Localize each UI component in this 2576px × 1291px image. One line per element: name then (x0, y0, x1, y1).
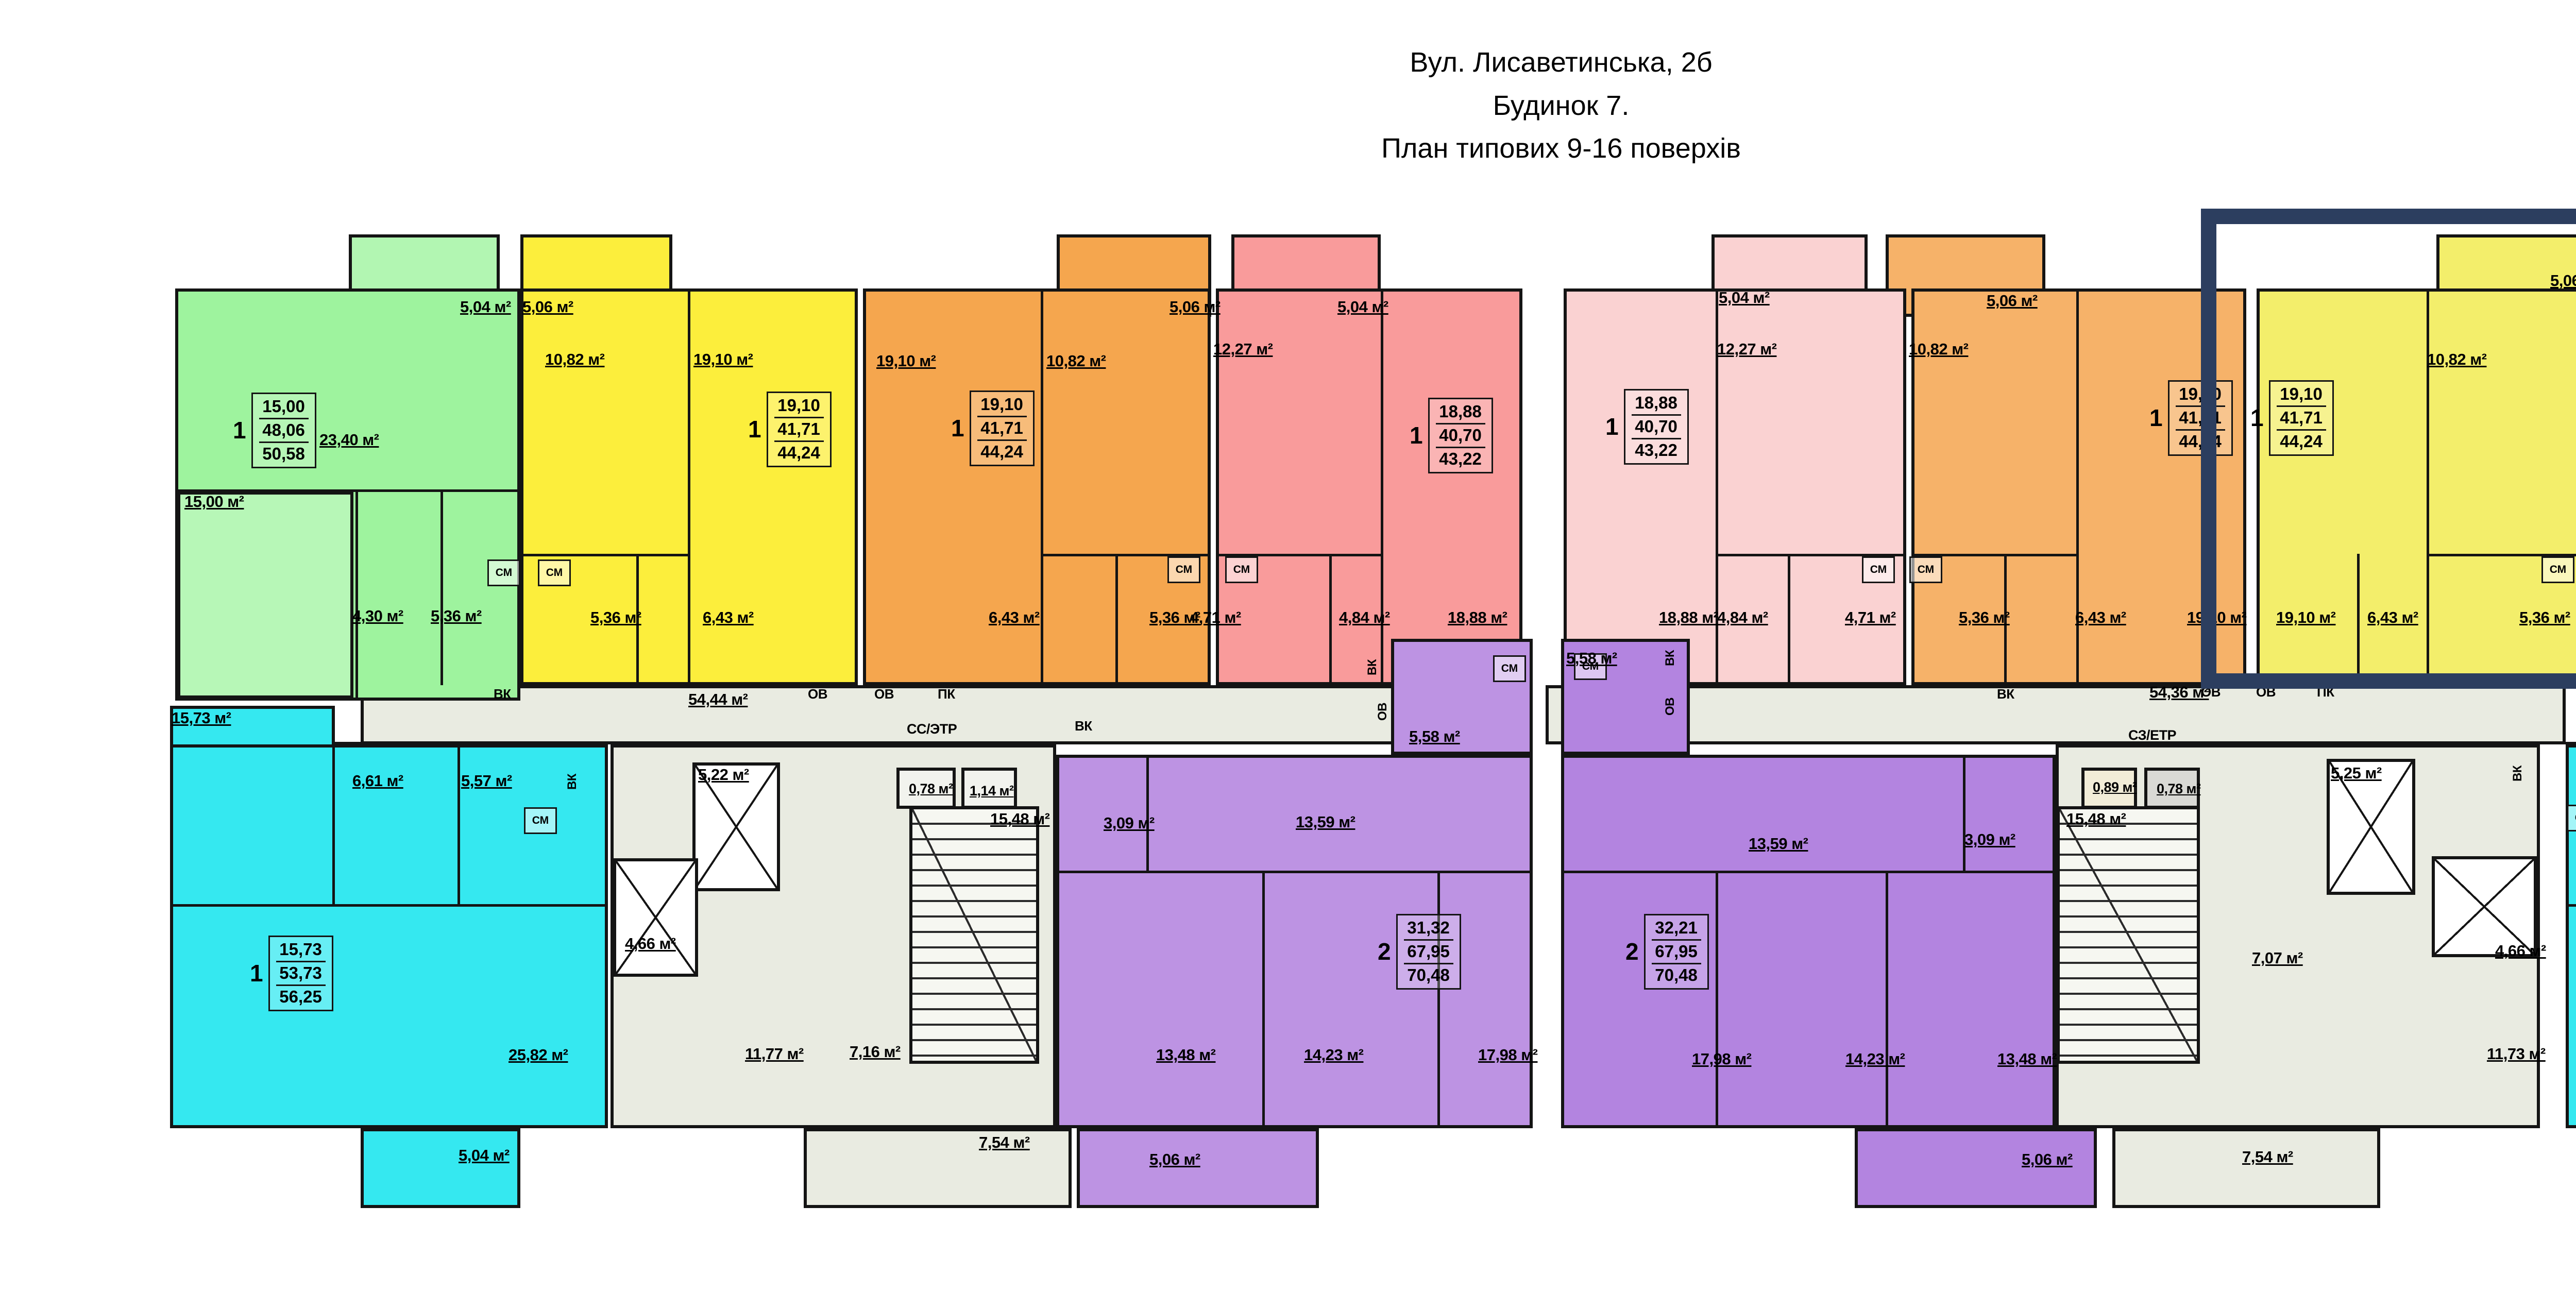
washing-machine-box: СМ (1909, 556, 1942, 583)
area-label: 19,10 м² (693, 350, 753, 369)
area-label: СЗ/ЕТР (2128, 727, 2176, 743)
area-label: 4,66 м² (625, 935, 676, 953)
area-label: 5,04 м² (1337, 298, 1388, 316)
washing-machine-box: СМ (2567, 805, 2576, 831)
area-label: 14,23 м² (1304, 1046, 1363, 1064)
apartment-stats: 119,1041,7144,24 (951, 390, 1035, 466)
washing-machine-box: СМ (2541, 556, 2574, 583)
apt-purple-left (1056, 755, 1533, 1128)
apartment-area-value: 41,71 (774, 418, 824, 442)
inner-wall (1262, 871, 1265, 1128)
area-label: 5,36 м² (431, 607, 482, 625)
area-label: ВК (565, 774, 580, 790)
inner-wall (440, 489, 443, 685)
inner-wall (1716, 871, 1718, 1128)
area-label: 12,27 м² (1717, 340, 1776, 359)
area-label: 5,25 м² (2331, 764, 2382, 783)
area-label: 5,58 м² (1566, 649, 1617, 668)
area-label: ВК (1663, 650, 1677, 666)
inner-wall (170, 904, 608, 907)
area-label: ВК (2511, 766, 2525, 782)
apartment-area-value: 19,10 (774, 395, 824, 418)
area-label: 7,54 м² (979, 1133, 1030, 1152)
inner-wall (332, 742, 335, 904)
apartment-room-count: 2 (1625, 938, 1639, 965)
apartment-area-value: 15,00 (259, 396, 309, 419)
area-label: 15,48 м² (2066, 810, 2126, 828)
area-label: 4,66 м² (2495, 942, 2546, 960)
apartment-area-value: 40,70 (1632, 416, 1681, 439)
area-label: 19,10 м² (2187, 608, 2246, 627)
area-label: 11,77 м² (745, 1045, 804, 1063)
inner-wall (2427, 288, 2429, 685)
area-label: ОВ (1663, 698, 1677, 716)
area-label: 13,59 м² (1296, 813, 1355, 831)
apt-cyan-right (2566, 744, 2576, 1128)
inner-wall (457, 742, 460, 904)
apartment-area-value: 44,24 (774, 442, 824, 464)
area-label: 11,73 м² (2487, 1045, 2546, 1063)
area-label: 6,43 м² (2367, 608, 2418, 627)
apartment-area-value: 41,71 (977, 417, 1027, 441)
apartment-areas-box: 19,1041,7144,24 (970, 390, 1035, 466)
apartment-area-value: 19,10 (977, 394, 1027, 417)
area-label: 5,06 м² (522, 298, 573, 316)
apartment-area-value: 70,48 (1652, 964, 1701, 987)
apartment-area-value: 43,22 (1632, 439, 1681, 462)
apartment-area-value: 44,24 (2277, 431, 2326, 453)
apartment-area-value: 18,88 (1436, 401, 1485, 424)
apartment-area-value: 70,48 (1404, 964, 1453, 987)
washing-machine-box: СМ (1493, 655, 1526, 682)
plan-title: Вул. Лисаветинська, 2б Будинок 7. План т… (1252, 41, 1870, 171)
elevator-shaft (613, 858, 698, 977)
area-label: 6,43 м² (989, 608, 1040, 627)
washing-machine-box: СМ (1225, 556, 1258, 583)
area-label: 5,06 м² (2550, 271, 2576, 290)
inner-wall (1041, 288, 1043, 685)
area-label: 12,27 м² (1213, 340, 1273, 359)
apartment-areas-box: 18,8840,7043,22 (1428, 398, 1493, 473)
apartment-areas-box: 19,1041,7144,24 (2269, 380, 2334, 456)
area-label: 0,78 м² (909, 781, 953, 797)
stairwell (2057, 806, 2200, 1064)
apartment-room-count: 1 (1605, 413, 1619, 440)
area-label: ПК (2317, 684, 2334, 700)
area-label: ПК (938, 686, 955, 702)
area-label: 5,06 м² (1149, 1150, 1200, 1169)
area-label: 5,04 м² (1719, 288, 1770, 307)
apartment-area-value: 41,71 (2176, 407, 2225, 431)
apartment-areas-box: 15,7353,7356,25 (268, 936, 333, 1011)
apartment-areas-box: 32,2167,9570,48 (1644, 914, 1709, 990)
inner-wall (520, 554, 688, 556)
inner-wall (1437, 871, 1440, 1128)
area-label: 4,84 м² (1339, 608, 1390, 627)
apartment-area-value: 67,95 (1652, 941, 1701, 964)
inner-wall (1886, 871, 1888, 1128)
area-label: 5,04 м² (459, 1146, 510, 1165)
apt-cyan-left (170, 744, 608, 1128)
apartment-area-value: 50,58 (259, 443, 309, 465)
area-label: 5,22 м² (698, 766, 749, 784)
apartment-areas-box: 19,1041,7144,24 (2168, 380, 2233, 456)
area-label: 15,73 м² (172, 709, 231, 727)
apartment-area-value: 41,71 (2277, 407, 2326, 431)
apartment-room-count: 1 (250, 959, 263, 987)
area-label: 25,82 м² (509, 1046, 568, 1064)
area-label: 5,57 м² (461, 772, 512, 790)
apartment-area-value: 56,25 (276, 986, 326, 1008)
area-label: ВК (1365, 659, 1380, 675)
title-building: Будинок 7. (1252, 84, 1870, 128)
apartment-stats: 118,8840,7043,22 (1410, 398, 1493, 473)
apartment-area-value: 43,22 (1436, 448, 1485, 470)
apartment-stats: 119,1041,7144,24 (2149, 380, 2233, 456)
area-label: 7,54 м² (2242, 1148, 2293, 1166)
apartment-room-count: 1 (748, 415, 761, 443)
inner-wall (2357, 554, 2360, 685)
area-label: ОВ (2256, 684, 2276, 700)
area-label: СС/ЭТР (907, 721, 957, 737)
area-label: 15,00 м² (184, 492, 244, 511)
inner-wall (175, 489, 520, 492)
corridor-right (1546, 685, 2566, 744)
area-label: 5,58 м² (1409, 727, 1460, 746)
apartment-room-count: 1 (233, 416, 246, 444)
area-label: 13,48 м² (1156, 1046, 1215, 1064)
apartment-areas-box: 31,3267,9570,48 (1396, 914, 1461, 990)
washing-machine-box: СМ (1167, 556, 1200, 583)
area-label: 19,10 м² (2276, 608, 2335, 627)
area-label: 14,23 м² (1845, 1050, 1905, 1068)
apartment-stats: 118,8840,7043,22 (1605, 389, 1689, 465)
apartment-areas-box: 15,0048,0650,58 (251, 393, 316, 468)
area-label: 13,59 м² (1749, 835, 1808, 853)
apartment-stats: 115,0048,0650,58 (233, 393, 316, 468)
area-label: 3,09 м² (1964, 830, 2015, 849)
area-label: 17,98 м² (1478, 1046, 1537, 1064)
area-label: 6,61 м² (352, 772, 403, 790)
inner-wall (2566, 742, 2576, 744)
apt-green-left-bedroom (177, 491, 353, 699)
area-label: 19,10 м² (876, 352, 936, 370)
area-label: 23,40 м² (319, 431, 379, 449)
inner-wall (1115, 554, 1118, 685)
apartment-room-count: 2 (1378, 938, 1391, 965)
balcony-corridor-left (804, 1128, 1072, 1208)
area-label: 5,36 м² (2519, 608, 2570, 627)
apartment-area-value: 44,24 (2176, 431, 2225, 453)
inner-wall (1056, 871, 1533, 873)
area-label: 6,43 м² (2075, 608, 2126, 627)
area-label: ВК (1075, 718, 1092, 734)
apartment-stats: 119,1041,7144,24 (2250, 380, 2334, 456)
area-label: ОВ (2201, 684, 2221, 700)
apartment-area-value: 48,06 (259, 419, 309, 443)
apartment-area-value: 19,10 (2176, 383, 2225, 407)
area-label: 5,36 м² (1959, 608, 2010, 627)
area-label: 10,82 м² (2427, 350, 2486, 369)
area-label: 17,98 м² (1692, 1050, 1751, 1068)
apartment-stats: 115,7353,7356,25 (250, 936, 333, 1011)
area-label: 3,09 м² (1104, 814, 1155, 833)
inner-wall (2566, 904, 2576, 907)
area-label: ОВ (1376, 703, 1390, 721)
area-label: 10,82 м² (545, 350, 604, 369)
area-label: 0,78 м² (2157, 781, 2201, 797)
inner-wall (1146, 755, 1149, 871)
apartment-area-value: 15,73 (276, 939, 326, 962)
inner-wall (688, 288, 690, 685)
apartment-areas-box: 18,8840,7043,22 (1624, 389, 1689, 465)
apartment-stats: 231,3267,9570,48 (1378, 914, 1461, 990)
title-floor-range: План типових 9-16 поверхів (1252, 127, 1870, 171)
area-label: 7,07 м² (2252, 949, 2303, 967)
area-label: 54,44 м² (688, 690, 748, 709)
area-label: 0,89 м² (2093, 779, 2137, 795)
apartment-stats: 119,1041,7144,24 (748, 392, 832, 467)
apartment-room-count: 1 (2250, 404, 2264, 432)
area-label: ОВ (808, 686, 827, 702)
area-label: 18,88 м² (1448, 608, 1507, 627)
area-label: 5,06 м² (1987, 292, 2038, 310)
stairwell (909, 806, 1039, 1064)
apartment-area-value: 19,10 (2277, 383, 2326, 407)
apartment-room-count: 1 (951, 414, 964, 442)
apartment-area-value: 32,21 (1652, 917, 1701, 941)
apartment-area-value: 67,95 (1404, 941, 1453, 964)
area-label: 54,36 м² (2149, 683, 2209, 702)
balcony-cyan-left (361, 1128, 520, 1208)
balcony-corridor-right (2112, 1128, 2380, 1208)
area-label: 13,48 м² (1997, 1050, 2057, 1068)
area-label: 4,71 м² (1190, 608, 1241, 627)
apartment-area-value: 31,32 (1404, 917, 1453, 941)
area-label: ОВ (874, 686, 894, 702)
apartment-area-value: 40,70 (1436, 424, 1485, 448)
inner-wall (1329, 554, 1332, 685)
area-label: 18,88 м² (1659, 608, 1718, 627)
apartment-area-value: 44,24 (977, 441, 1027, 463)
apartment-room-count: 1 (1410, 421, 1423, 449)
apartment-room-count: 1 (2149, 404, 2163, 432)
inner-wall (332, 742, 608, 744)
inner-wall (1561, 871, 2056, 873)
area-label: ВК (1997, 686, 2014, 702)
apartment-area-value: 53,73 (276, 962, 326, 986)
title-address: Вул. Лисаветинська, 2б (1252, 41, 1870, 84)
washing-machine-box: СМ (487, 559, 520, 586)
apartment-area-value: 18,88 (1632, 392, 1681, 416)
inner-wall (1788, 554, 1790, 685)
floor-plan: Вул. Лисаветинська, 2б Будинок 7. План т… (0, 0, 2576, 1291)
washing-machine-box: СМ (538, 559, 571, 586)
area-label: 10,82 м² (1046, 352, 1106, 370)
area-label: 1,14 м² (970, 783, 1014, 799)
area-label: 15,48 м² (990, 810, 1049, 828)
area-label: ВК (494, 686, 511, 702)
area-label: 5,04 м² (460, 298, 511, 316)
washing-machine-box: СМ (1862, 556, 1895, 583)
area-label: 4,84 м² (1717, 608, 1768, 627)
area-label: 4,30 м² (352, 607, 403, 625)
area-label: 6,43 м² (703, 608, 754, 627)
area-label: 5,06 м² (1170, 298, 1221, 316)
area-label: 10,82 м² (1909, 340, 1968, 359)
area-label: 5,36 м² (590, 608, 641, 627)
area-label: 5,06 м² (2022, 1150, 2073, 1169)
area-label: 7,16 м² (850, 1043, 901, 1061)
area-label: 4,71 м² (1845, 608, 1896, 627)
inner-wall (1963, 755, 1965, 871)
apartment-stats: 232,2167,9570,48 (1625, 914, 1709, 990)
washing-machine-box: СМ (524, 807, 557, 834)
apartment-areas-box: 19,1041,7144,24 (767, 392, 832, 467)
inner-wall (355, 489, 358, 701)
